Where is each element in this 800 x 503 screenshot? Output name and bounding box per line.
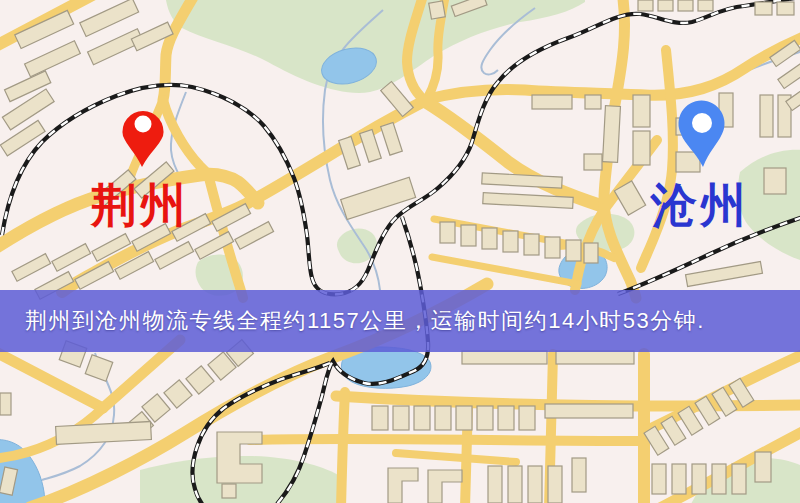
map-canvas: 荆州 沧州 [0,0,800,503]
destination-label: 沧州 [649,179,749,231]
origin-pin[interactable] [123,111,164,167]
destination-pin-hole [692,113,712,133]
map-view: 荆州 沧州 荆州到沧州物流专线全程约1157公里，运输时间约14小时53分钟. [0,0,800,503]
route-banner-text: 荆州到沧州物流专线全程约1157公里，运输时间约14小时53分钟. [25,306,705,336]
origin-label: 荆州 [90,179,189,231]
origin-pin-hole [135,116,152,133]
route-banner: 荆州到沧州物流专线全程约1157公里，运输时间约14小时53分钟. [0,290,800,352]
